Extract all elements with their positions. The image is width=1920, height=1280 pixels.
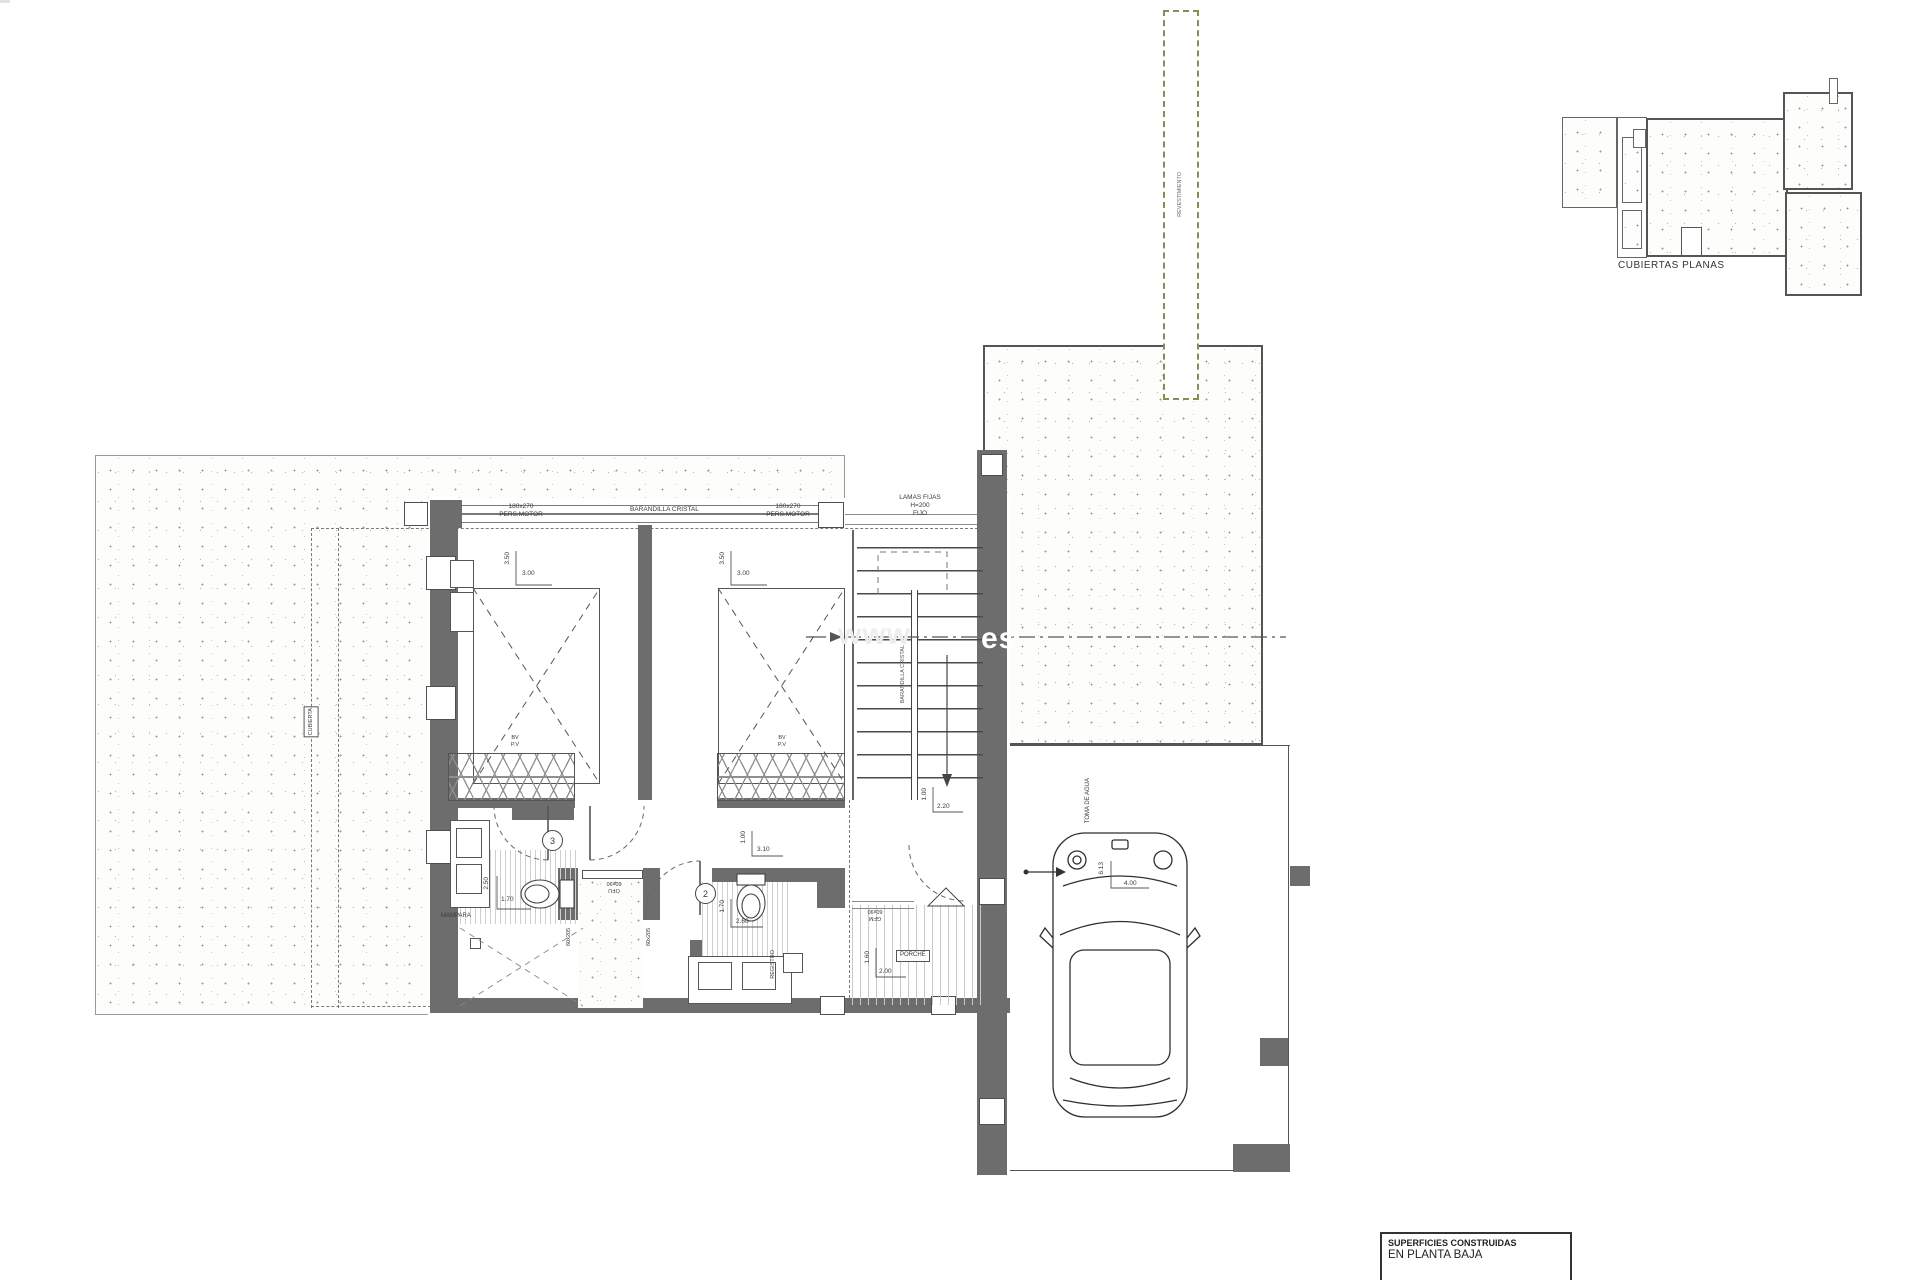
terrace-edge-label: CUBIERTA [304, 706, 319, 737]
lamas-line2: H=200 [875, 502, 965, 510]
stairs-dim-h: 2.20 [937, 803, 950, 811]
garage-dim-h: 4.00 [1124, 880, 1137, 888]
nightstand-2 [450, 592, 474, 632]
pers-motor-right-label: 180x270 PERS.MOTOR [752, 503, 824, 519]
eave-dash-left-outer [311, 528, 312, 1008]
window-pillar-nw [404, 502, 428, 526]
lightwell-side-right-label: 60x205 [646, 928, 653, 946]
legend-box: SUPERFICIES CONSTRUIDAS EN PLANTA BAJA [1380, 1232, 1572, 1280]
pers-motor-left-label: 180x270 PERS.MOTOR [485, 503, 557, 519]
lightwell-side-left-label: 60x205 [566, 928, 573, 946]
wardrobe1-label: BV P.V [495, 735, 535, 748]
shaft-register-label: REGISTRO [770, 950, 777, 979]
water-tap-label: TOMA DE AGUA [1085, 778, 1092, 823]
bedroom1-dim-v: 3.50 [504, 552, 512, 565]
watermark-prefix: www [838, 618, 911, 652]
margin-tick [0, 0, 10, 3]
roof-inset: CUBIERTAS PLANAS [1555, 70, 1915, 330]
inset-strip-roof-2 [1622, 210, 1642, 249]
wall-bedroom-partition [638, 528, 652, 800]
garage-pillar-4 [1290, 866, 1310, 886]
bedroom2-dim-v: 3.50 [719, 552, 727, 565]
wall-stair-glass [852, 530, 854, 800]
wardrobe2-line2: P.V [762, 742, 802, 749]
inset-skylight [1681, 227, 1702, 256]
wardrobe2-label: BV P.V [762, 735, 802, 748]
inset-roof-lower-right [1785, 192, 1862, 296]
inset-roof-left [1562, 117, 1617, 208]
bath3-number: 3 [542, 830, 563, 851]
stair-rail-label: BARANDILLA CRISTAL [900, 645, 907, 703]
window-west-2 [426, 686, 456, 720]
shaft-register-box [783, 953, 803, 973]
wardrobe2-line1: BV [762, 735, 802, 742]
window-east-3 [979, 1098, 1005, 1125]
bath2-entry-dim-h: 3.10 [757, 846, 770, 854]
car [1040, 833, 1200, 1117]
garage-pillar-2 [1233, 1144, 1290, 1172]
porch-edge-dash [849, 800, 850, 1008]
porch-label: PORCHE [896, 950, 930, 962]
mampara-label: MAMPARA [441, 913, 471, 921]
wall-bath2-corner [817, 868, 845, 908]
pers-left-type: PERS.MOTOR [485, 511, 557, 519]
lightwell-win-line2: 60x90 [590, 880, 638, 887]
stair-treads [857, 547, 983, 800]
wardrobe1-line1: BV [495, 735, 535, 742]
wardrobe1-line2: P.V [495, 742, 535, 749]
watermark-suffix: es [981, 622, 1016, 656]
stair-railing [911, 590, 918, 800]
bedroom1-dim-h: 3.00 [522, 570, 535, 578]
pers-left-size: 180x270 [485, 503, 557, 511]
eave-dash-left-inner [338, 528, 339, 1008]
lamas-line1: LAMAS FIJAS [875, 494, 965, 502]
wall-bath2-top [712, 868, 817, 882]
nightstand-1 [450, 560, 474, 588]
hall-step-label: GFM 60x90 [853, 908, 897, 921]
lightwell-window [582, 870, 643, 879]
inset-roof-upper-right [1783, 92, 1853, 190]
wall-corner-nw [430, 500, 462, 528]
terrace-upper-right [983, 345, 1263, 745]
pers-right-size: 180x270 [752, 503, 824, 511]
bath2-dim-h: 2.60 [736, 918, 749, 926]
stairs-dim-v: 1.00 [921, 788, 929, 801]
lightwell-window-label: OFU 60x90 [590, 880, 638, 893]
cladding-strip: REVESTIMIENTO [1163, 10, 1199, 400]
inset-roof-main [1646, 118, 1788, 257]
garage-pillar-1 [1260, 1038, 1288, 1066]
hall-step-line1: GFM [853, 915, 897, 922]
wardrobe-2 [717, 753, 845, 801]
bath2-entry-dim-v: 1.00 [740, 831, 748, 844]
lightwell-win-line1: OFU [590, 887, 638, 894]
bath3-sink-2 [456, 864, 482, 894]
lamas-line3: FIJO [875, 510, 965, 518]
lamas-fijas-label: LAMAS FIJAS H=200 FIJO [875, 494, 965, 518]
inset-strip-box [1633, 129, 1646, 148]
bedroom2-dim-h: 3.00 [737, 570, 750, 578]
legend-line1: SUPERFICIES CONSTRUIDAS [1388, 1238, 1564, 1248]
garage-pillar-3 [979, 1128, 1007, 1175]
bath3-dim-h: 1.70 [501, 896, 514, 904]
bath3-dim-v: 2.50 [483, 877, 491, 890]
inset-chimney [1829, 78, 1838, 104]
cladding-strip-label: REVESTIMIENTO [1177, 172, 1184, 217]
legend-line2: EN PLANTA BAJA [1388, 1249, 1564, 1261]
garage-wall-top [1010, 745, 1290, 746]
porch-dim-h: 2.00 [879, 968, 892, 976]
window-east-1 [981, 454, 1003, 476]
garage-dim-v: 6.13 [1098, 862, 1106, 875]
wardrobe-1 [448, 753, 575, 801]
pillar-south-1 [820, 996, 845, 1015]
bath3-sink-1 [456, 828, 482, 858]
window-east-2 [979, 878, 1005, 905]
bath2-number: 2 [695, 883, 716, 904]
wall-lightwell-right [643, 868, 660, 920]
pers-right-type: PERS.MOTOR [752, 511, 824, 519]
glass-rail-label: BARANDILLA CRISTAL [630, 506, 699, 514]
bath2-sink-1 [698, 962, 732, 990]
wall-bath3-top [512, 807, 574, 820]
shower-drain [470, 938, 481, 949]
porch-dim-v: 1.60 [864, 951, 872, 964]
eave-dash-bottom [311, 1006, 431, 1007]
garage-wall-right [1288, 745, 1289, 1172]
inset-title: CUBIERTAS PLANAS [1618, 260, 1725, 271]
bath2-dim-v: 1.70 [719, 900, 727, 913]
hall-step-line2: 60x90 [853, 908, 897, 915]
floor-plan-canvas: REVESTIMIENTO [0, 0, 1920, 1280]
water-tap-arrow [1024, 867, 1067, 877]
